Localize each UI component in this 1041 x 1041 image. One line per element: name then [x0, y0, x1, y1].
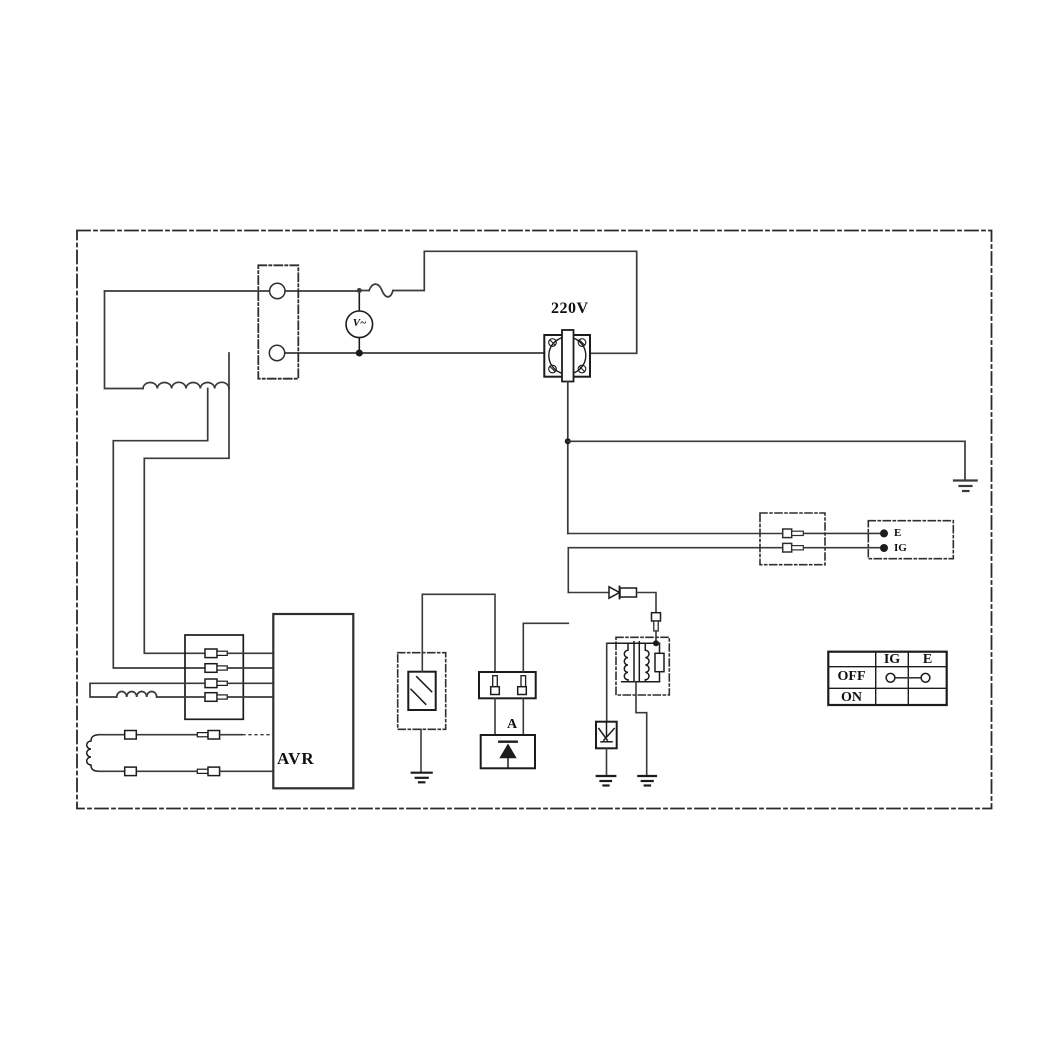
fuse-icon [362, 251, 637, 353]
rectifier-label: A [505, 718, 519, 732]
terminal-ig-label: IG [894, 543, 907, 554]
four-pin-connector-icon [185, 635, 273, 719]
wiring-diagram-page: 220V V~ AVR A E IG IG E OFF ON [0, 0, 1041, 1041]
exciter-winding-icon [90, 683, 205, 697]
charge-winding-icon [87, 731, 274, 776]
pin-connector-pair-icon [760, 513, 825, 565]
diagram-boundary [77, 231, 992, 809]
rectifier-unit-icon [479, 623, 568, 768]
avr-label: AVR [277, 750, 323, 767]
e-ig-terminal-block-icon [868, 521, 953, 559]
spark-plug-icon [596, 722, 617, 786]
switch-row-on-label: ON [828, 691, 875, 705]
diode-icon [609, 587, 637, 599]
ignition-coil-icon [607, 637, 670, 785]
inline-pin-icon [652, 613, 661, 631]
earth-ground-right-icon [565, 438, 977, 491]
switch-row-off-label: OFF [828, 670, 875, 684]
voltmeter-label: V~ [345, 318, 374, 329]
ignition-feed [568, 587, 660, 641]
generator-wiring-schematic [0, 0, 1041, 1041]
switch-col-e-label: E [908, 653, 947, 667]
main-coil-icon [143, 382, 229, 388]
main-winding-wires [105, 291, 545, 668]
terminal-e-label: E [894, 528, 901, 539]
receptacle-220v-icon [544, 330, 590, 534]
two-pole-connector-icon [258, 265, 298, 378]
receptacle-voltage-label: 220V [551, 301, 589, 317]
switch-col-ig-label: IG [876, 653, 908, 667]
